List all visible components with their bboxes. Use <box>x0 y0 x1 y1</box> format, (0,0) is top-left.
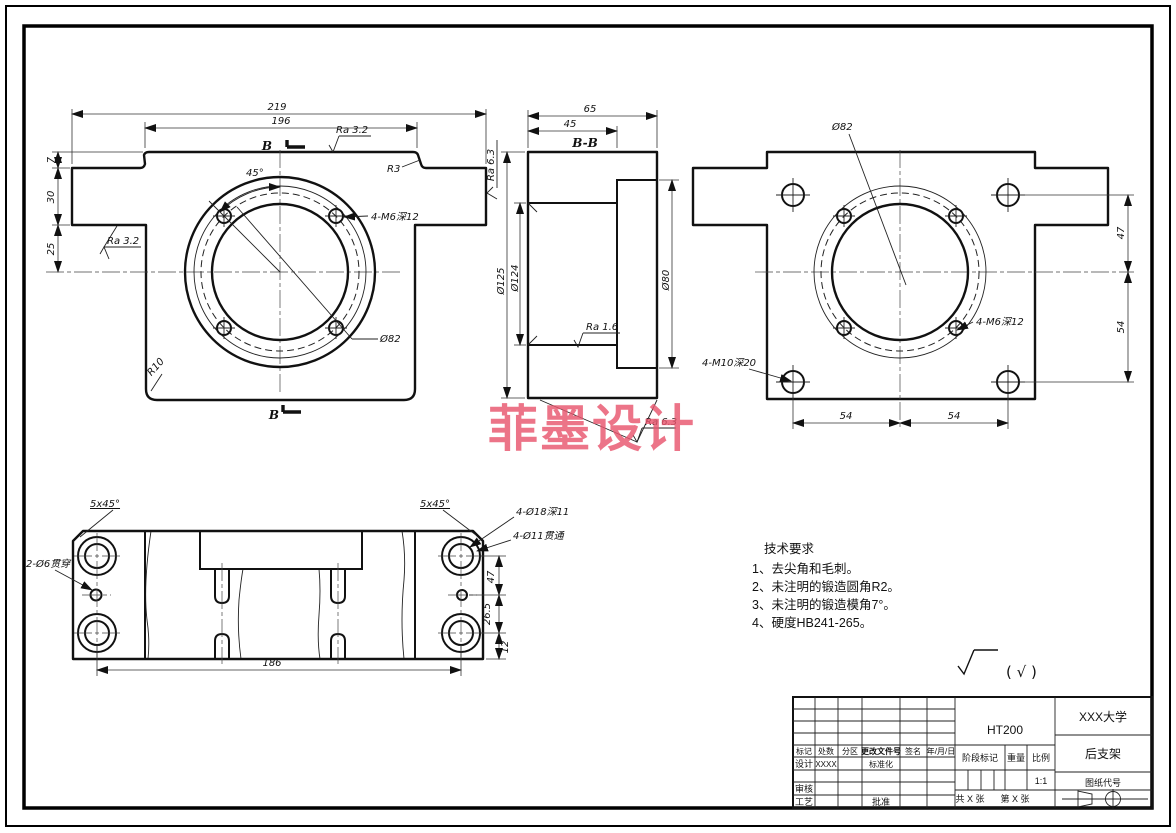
tb-row-check: 审核 <box>795 783 813 794</box>
bottom-dim-right: 47 26.5 12 <box>469 556 511 659</box>
front-m6-text: 4-M6深12 <box>371 211 419 223</box>
chamfer-right-text: 5x45° <box>420 499 450 510</box>
angle-45-text: 45° <box>246 168 264 179</box>
bottom-counterbores <box>74 533 484 657</box>
dim-phi80-text: Ø80 <box>660 270 672 292</box>
tb-weight-label: 重量 <box>1007 752 1025 763</box>
rear-phi82-text: Ø82 <box>831 121 853 133</box>
roughness-top-text: Ra 3.2 <box>336 125 368 136</box>
rear-m10-callout: 4-M10深20 <box>702 357 791 381</box>
hole6-text: 2-Ø6贯穿 <box>26 558 72 570</box>
bottom-pins <box>215 563 345 664</box>
dim-65-text: 65 <box>584 104 597 115</box>
tech-req-line4: 4、硬度HB241-265。 <box>752 615 872 630</box>
tb-part-name: 后支架 <box>1085 747 1121 761</box>
bottom-outline <box>73 531 483 659</box>
tech-req-line1: 1、去尖角和毛刺。 <box>752 562 859 576</box>
fillet-r10: R10 <box>145 356 166 391</box>
dim-25-text: 25 <box>46 243 57 256</box>
front-view: 219 196 7 30 25 Ra 3.2 Ra 3 <box>46 102 497 422</box>
roughness-bore: Ra 1.6 <box>574 322 620 347</box>
roughness-note: ( √ ) <box>958 650 1037 681</box>
tb-material: HT200 <box>987 723 1023 737</box>
tb-stage-label: 阶段标记 <box>962 752 998 763</box>
tb-col-mark: 标记 <box>796 746 812 756</box>
rear-m6-text: 4-M6深12 <box>976 316 1024 328</box>
dim-phi124-text: Ø124 <box>509 265 521 293</box>
tb-scale-value: 1:1 <box>1035 776 1048 786</box>
hole6-callout: 2-Ø6贯穿 <box>26 558 92 590</box>
tb-drawing-code: 图纸代号 <box>1085 777 1121 788</box>
roughness-right-text: Ra 6.3 <box>486 149 497 181</box>
roughness-right: Ra 6.3 <box>486 140 497 199</box>
roughness-bore-text: Ra 1.6 <box>586 322 618 333</box>
section-mark-bottom: B <box>268 405 301 422</box>
rear-m10-text: 4-M10深20 <box>702 357 756 369</box>
dim-7-text: 7 <box>46 156 57 163</box>
tech-req-line3: 3、未注明的锻造模角7°。 <box>752 597 896 612</box>
tb-scale-label: 比例 <box>1032 752 1050 763</box>
cad-drawing: 219 196 7 30 25 Ra 3.2 Ra 3 <box>0 0 1176 833</box>
rear-view: Ø82 4-M6深12 4-M10深20 47 54 54 54 <box>693 121 1134 429</box>
bottom-dim-47-text: 47 <box>486 570 497 583</box>
tb-row-process: 工艺 <box>795 797 813 807</box>
rear-dim-54r-text: 54 <box>1116 321 1127 334</box>
section-view-bb: B-B 65 45 Ø125 Ø124 Ø80 Ra 1.6 <box>495 104 679 442</box>
dim-phi80: Ø80 <box>659 180 679 368</box>
tb-company: XXX大学 <box>1079 709 1127 724</box>
tb-col-zone: 分区 <box>842 747 858 756</box>
hole11-text: 4-Ø11贯通 <box>513 530 566 542</box>
section-letter-top: B <box>261 139 272 153</box>
tb-sheet-no: 第 X 张 <box>1000 793 1029 804</box>
dim-219: 219 <box>72 102 486 164</box>
rear-dim-54b-text: 54 <box>948 411 961 422</box>
projection-symbol <box>1062 789 1148 809</box>
hole18-text: 4-Ø18深11 <box>516 506 569 518</box>
dim-196: 196 <box>145 116 417 148</box>
tech-requirements: 技术要求 1、去尖角和毛刺。 2、未注明的锻造圆角R2。 3、未注明的锻造模角7… <box>752 542 900 630</box>
section-title: B-B <box>571 136 598 150</box>
chamfer-left-text: 5x45° <box>90 499 120 510</box>
tb-sheet-total: 共 X 张 <box>955 794 984 804</box>
section-hatch-top <box>528 152 657 203</box>
rear-corner-holes <box>776 178 1025 399</box>
fillet-r3-text: R3 <box>387 164 400 175</box>
bottom-view: 5x45° 5x45° 2-Ø6贯穿 4-Ø18深11 4-Ø11贯通 186 <box>26 499 569 676</box>
title-block: 标记 处数 分区 更改文件号 签名 年/月/日 设计 XXXX 标准化 审核 工… <box>793 697 1152 809</box>
front-phi82-text: Ø82 <box>379 333 401 345</box>
tb-row-design: 设计 <box>795 758 813 769</box>
roughness-left-text: Ra 3.2 <box>107 236 139 247</box>
tb-design-value: XXXX <box>815 760 837 769</box>
rear-dim-47-text: 47 <box>1116 226 1127 239</box>
bore-chamfers <box>528 203 537 345</box>
fillet-r10-text: R10 <box>145 356 166 378</box>
dim-chain-left: 7 30 25 <box>46 152 143 272</box>
drawing-sheet: 219 196 7 30 25 Ra 3.2 Ra 3 <box>0 0 1176 833</box>
dim-phi124: Ø124 <box>509 203 526 345</box>
section-letter-bottom: B <box>268 408 279 422</box>
dim-186-text: 186 <box>262 658 281 669</box>
section-hatch-bottom <box>528 345 657 398</box>
roughness-top: Ra 3.2 <box>329 125 371 152</box>
tb-row-standard: 标准化 <box>869 759 893 769</box>
tb-col-doc: 更改文件号 <box>861 746 901 756</box>
fillet-r3: R3 <box>387 160 420 175</box>
roughness-note-text: ( √ ) <box>1006 663 1037 681</box>
tb-col-date: 年/月/日 <box>927 746 955 756</box>
bottom-dim-265-text: 26.5 <box>482 603 493 625</box>
dim-30-text: 30 <box>46 191 57 204</box>
tech-req-line2: 2、未注明的锻造圆角R2。 <box>752 579 900 594</box>
tb-col-sign: 签名 <box>905 746 921 756</box>
dim-phi125-text: Ø125 <box>495 268 507 296</box>
chamfer-callout-right: 5x45° <box>420 499 476 535</box>
bottom-dim-12-text: 12 <box>500 641 511 654</box>
watermark-text: 菲墨设计 <box>488 401 696 457</box>
dim-196-text: 196 <box>271 116 290 127</box>
tech-req-title: 技术要求 <box>764 542 815 556</box>
dim-186: 186 <box>97 645 461 676</box>
roughness-left: Ra 3.2 <box>100 226 141 259</box>
tb-row-approve: 批准 <box>872 796 890 807</box>
rear-dim-right: 47 54 <box>1020 195 1134 382</box>
section-inner-edges <box>528 180 657 368</box>
tb-col-count: 处数 <box>818 746 834 756</box>
section-outline <box>528 152 657 398</box>
front-outline <box>72 152 486 400</box>
rear-m6-callout: 4-M6深12 <box>957 316 1024 330</box>
bottom-inner-edges <box>145 531 415 659</box>
rear-dim-54a-text: 54 <box>840 411 853 422</box>
dim-45-text: 45 <box>564 119 577 130</box>
dim-219-text: 219 <box>267 102 286 113</box>
